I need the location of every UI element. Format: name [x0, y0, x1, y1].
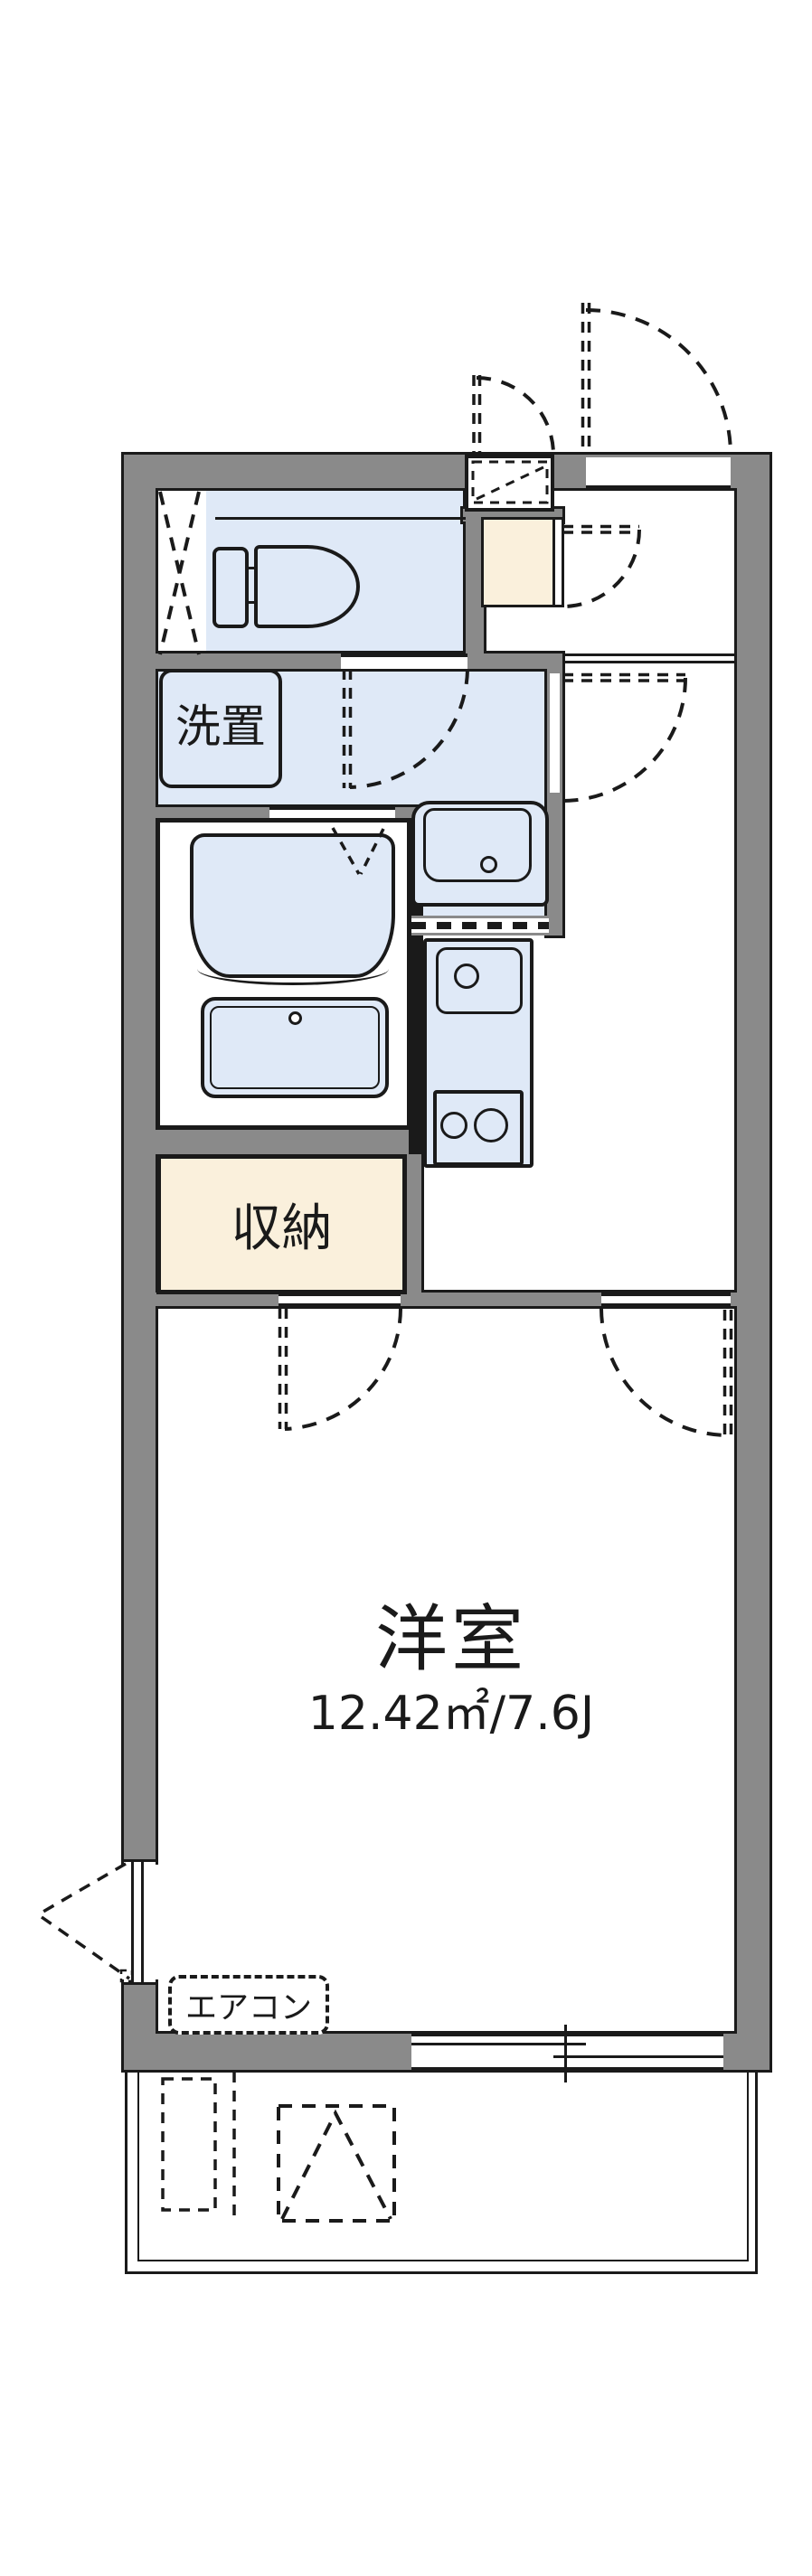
entrance-door-swing — [583, 303, 732, 455]
aircon-label-box: エアコン — [168, 1975, 329, 2035]
wall-right — [737, 455, 770, 2070]
toilet-room-line — [215, 517, 466, 520]
sliding-window-pane — [411, 2043, 586, 2045]
toilet-tank-icon — [212, 547, 249, 628]
left-window-pane — [141, 1862, 144, 1982]
closet-label: 収納 — [231, 1188, 333, 1261]
washroom-door-opening — [550, 673, 560, 793]
window-swing — [42, 1864, 132, 1981]
left-window-opening — [124, 1862, 156, 1982]
line — [124, 1982, 156, 1985]
kitchen-faucet — [454, 964, 479, 989]
entrance-door-opening — [586, 457, 731, 485]
stove-burner — [440, 1112, 467, 1139]
sliding-window-opening — [411, 2036, 723, 2067]
left-window-pane — [131, 1862, 134, 1982]
toilet-door-opening — [341, 657, 467, 669]
toilet-connector — [247, 567, 256, 569]
hatch-dashes — [411, 922, 549, 929]
stove-burner — [474, 1108, 508, 1142]
line — [601, 1303, 731, 1306]
entrance-threshold-line — [586, 485, 731, 488]
closet-box: 収納 — [156, 1154, 407, 1294]
washbasin-bowl — [423, 808, 532, 882]
genkan-step-gap — [555, 520, 562, 605]
closet-door-swing — [280, 1308, 401, 1429]
genkan-floor — [481, 517, 557, 607]
hatched-wall-band — [411, 916, 549, 935]
line — [279, 1303, 401, 1306]
bath-vanity-icon — [190, 833, 395, 978]
page: { "plan": { "title": "apartment-floor-pl… — [0, 0, 812, 2576]
room-area-label: 12.42㎡/7.6J — [180, 1681, 722, 1735]
room-door-swing — [601, 1309, 732, 1439]
hall-door-swing — [562, 527, 639, 607]
toilet-bowl-icon — [254, 545, 360, 628]
hall-boundary-line — [562, 653, 737, 656]
hall-boundary-line — [562, 661, 737, 663]
line — [124, 1859, 156, 1862]
balcony-inner — [137, 2070, 749, 2261]
line — [411, 2034, 723, 2036]
washbasin-faucet — [480, 856, 497, 873]
wall-bath-closet — [156, 1128, 409, 1154]
laundry-label: 洗置 — [159, 698, 282, 748]
sliding-window-pane — [553, 2055, 723, 2058]
pipe-space-icon — [160, 492, 199, 654]
washroom-door-swing — [562, 675, 685, 802]
wall-left — [124, 455, 156, 1862]
kitchen-sink — [436, 947, 523, 1014]
aircon-label: エアコン — [185, 1982, 312, 2028]
entrance-niche — [468, 458, 551, 508]
toilet-connector — [247, 601, 256, 604]
niche-door-swing — [474, 375, 553, 455]
floor-plan: 収納 — [0, 0, 812, 2576]
room-name-label: 洋室 — [260, 1593, 643, 1674]
bathtub-drain — [288, 1011, 302, 1025]
